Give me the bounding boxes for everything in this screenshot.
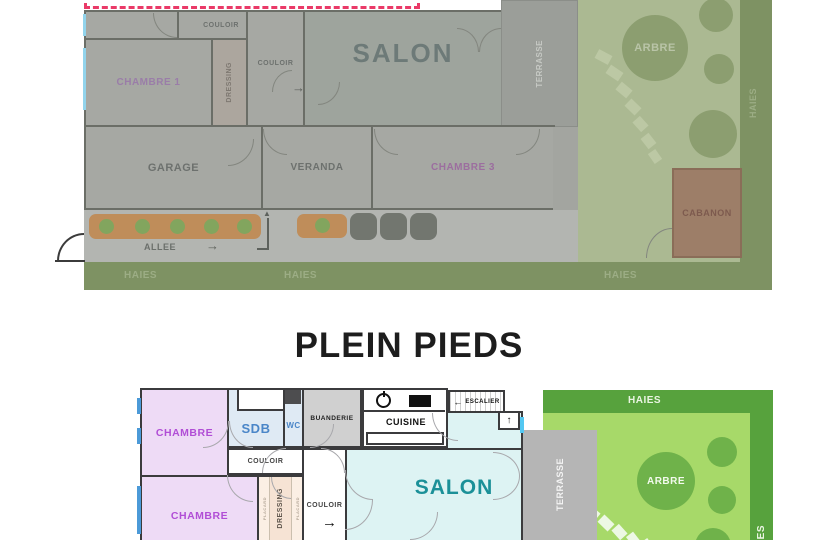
tree-large-b: ARBRE	[637, 452, 695, 510]
stair-arrow-up-icon: ↑	[507, 415, 512, 426]
escalier-label: ESCALIER	[465, 399, 499, 405]
water-heater-icon	[285, 390, 301, 404]
stepping-stone	[626, 532, 641, 540]
shrub-b	[695, 528, 731, 540]
placard-left: PLACARD	[259, 477, 270, 540]
window-strip-b	[137, 486, 141, 534]
hedge-right-strip-b: HAIES	[750, 413, 773, 540]
placard-right-label: PLACARD	[295, 497, 300, 520]
terrasse-label-b: TERRASSE	[555, 458, 565, 511]
plan-bottom: HAIES ARBRE HAIES TERRASSE SALON CUISINE	[0, 0, 818, 540]
terrasse-b: TERRASSE	[523, 430, 597, 540]
wc-label: WC	[286, 421, 300, 430]
floorplan-page: { "title": "PLEIN PIEDS", "icons": { "ar…	[0, 0, 818, 540]
window-strip-b	[137, 428, 141, 444]
hedge-top-strip-b: HAIES	[543, 390, 773, 413]
stair-arrow-left-icon: ←	[453, 397, 462, 407]
placard-left-label: PLACARD	[262, 497, 267, 520]
bathtub-icon	[237, 390, 283, 411]
window-strip-b	[137, 398, 141, 414]
shrub-b	[708, 486, 736, 514]
escalier: ← ESCALIER	[448, 390, 505, 413]
hedge-right-label-b: HAIES	[756, 525, 767, 540]
sink-tap-icon	[383, 391, 385, 397]
tree-label-b: ARBRE	[647, 476, 685, 487]
couloir-arrow-right-icon: →	[322, 514, 337, 531]
shrub-b	[707, 437, 737, 467]
chambre-b-label: CHAMBRE	[171, 510, 228, 522]
stepping-stone	[611, 524, 627, 540]
placard-right: PLACARD	[291, 477, 302, 540]
salon-label-b: SALON	[415, 476, 494, 500]
kitchen-counter	[366, 432, 444, 445]
buanderie-label: BUANDERIE	[310, 415, 353, 422]
hedge-top-label-b: HAIES	[628, 395, 661, 406]
stove-icon	[409, 395, 431, 407]
window-strip-cyan	[520, 417, 524, 433]
cuisine-label: CUISINE	[386, 417, 426, 427]
couloir-v-label: COULOIR	[307, 502, 343, 509]
counter-divider	[364, 410, 445, 412]
stair-up-landing: ↑	[498, 411, 520, 430]
selection-outline-dashed	[84, 0, 420, 9]
